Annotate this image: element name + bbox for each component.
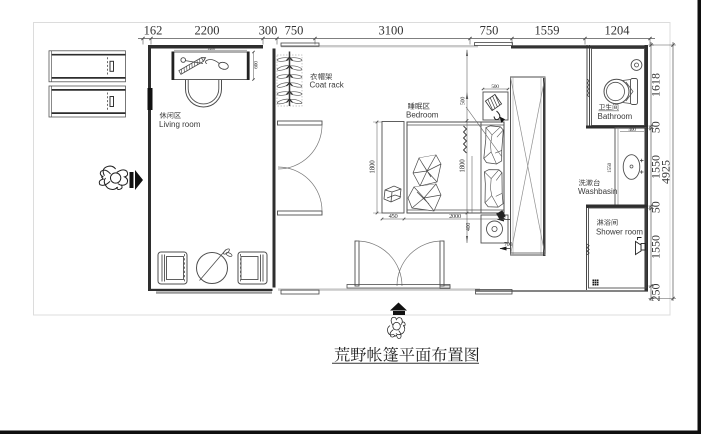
svg-text:1550: 1550 <box>649 235 663 259</box>
svg-text:700: 700 <box>504 242 512 248</box>
svg-text:50: 50 <box>649 201 663 213</box>
svg-text:400: 400 <box>466 223 472 231</box>
svg-text:Bathroom: Bathroom <box>598 112 633 121</box>
svg-text:4925: 4925 <box>659 160 673 184</box>
svg-text:Coat rack: Coat rack <box>310 80 345 89</box>
svg-text:1559: 1559 <box>535 23 560 37</box>
svg-text:Shower room: Shower room <box>596 227 643 236</box>
svg-text:750: 750 <box>285 23 304 37</box>
svg-text:1400: 1400 <box>207 46 216 51</box>
svg-text:1800: 1800 <box>459 159 467 173</box>
svg-text:3100: 3100 <box>379 23 404 37</box>
svg-text:Washbasin: Washbasin <box>578 187 617 196</box>
svg-text:Living room: Living room <box>159 120 201 129</box>
svg-text:1800: 1800 <box>369 160 377 174</box>
svg-text:50: 50 <box>649 121 663 133</box>
svg-text:1550: 1550 <box>607 163 613 173</box>
svg-text:450: 450 <box>389 213 398 220</box>
svg-text:600: 600 <box>254 61 260 69</box>
svg-text:162: 162 <box>144 23 163 37</box>
svg-text:2000: 2000 <box>449 213 461 220</box>
svg-text:400: 400 <box>628 127 636 133</box>
svg-text:1204: 1204 <box>605 23 631 37</box>
svg-text:500: 500 <box>491 84 499 90</box>
svg-text:Bedroom: Bedroom <box>406 111 439 120</box>
svg-text:750: 750 <box>480 23 499 37</box>
svg-text:300: 300 <box>259 23 278 37</box>
svg-text:500: 500 <box>461 97 467 105</box>
svg-text:1618: 1618 <box>649 73 663 97</box>
svg-text:2200: 2200 <box>195 23 220 37</box>
